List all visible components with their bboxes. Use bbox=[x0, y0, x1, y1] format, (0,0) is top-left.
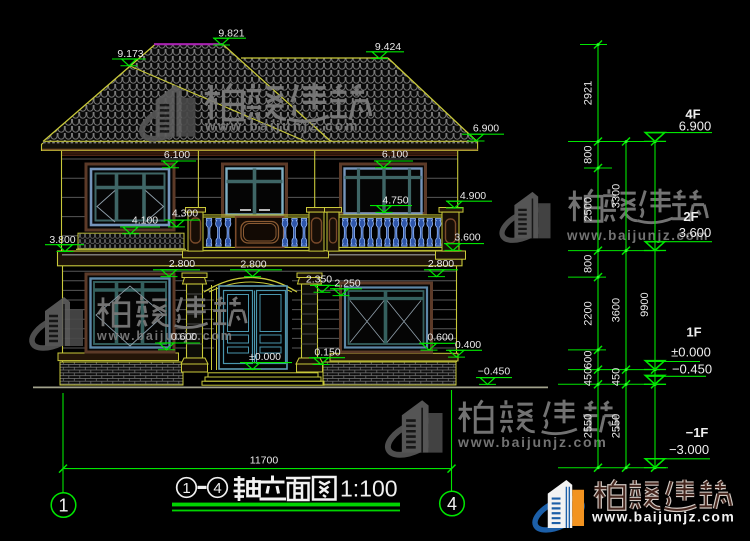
svg-text:2921: 2921 bbox=[583, 81, 595, 105]
svg-text:800: 800 bbox=[583, 255, 595, 273]
svg-text:4.100: 4.100 bbox=[132, 215, 158, 227]
svg-text:6.900: 6.900 bbox=[473, 123, 499, 135]
svg-text:2550: 2550 bbox=[583, 414, 595, 438]
svg-text:6.100: 6.100 bbox=[382, 149, 408, 161]
svg-text:3.600: 3.600 bbox=[454, 232, 480, 244]
svg-text:4.750: 4.750 bbox=[382, 195, 408, 207]
svg-text:2200: 2200 bbox=[583, 301, 595, 325]
svg-text:0.150: 0.150 bbox=[314, 347, 340, 359]
svg-text:9900: 9900 bbox=[639, 292, 651, 316]
svg-text:1F: 1F bbox=[686, 325, 701, 340]
svg-text:−0.450: −0.450 bbox=[478, 366, 511, 378]
svg-text:450: 450 bbox=[583, 368, 595, 386]
svg-text:0.600: 0.600 bbox=[427, 332, 453, 344]
svg-text:1: 1 bbox=[182, 480, 190, 497]
svg-text:800: 800 bbox=[583, 146, 595, 164]
svg-text:0.600: 0.600 bbox=[171, 331, 197, 343]
svg-text:450: 450 bbox=[611, 368, 623, 386]
svg-text:3.800: 3.800 bbox=[49, 234, 75, 246]
svg-text:0.400: 0.400 bbox=[455, 339, 481, 351]
svg-text:2500: 2500 bbox=[583, 197, 595, 221]
svg-text:6.100: 6.100 bbox=[164, 149, 190, 161]
svg-text:−1F: −1F bbox=[686, 425, 709, 440]
svg-text:2.800: 2.800 bbox=[240, 259, 266, 271]
svg-text:4.300: 4.300 bbox=[172, 208, 198, 220]
svg-text:1: 1 bbox=[58, 496, 68, 516]
svg-text:3600: 3600 bbox=[611, 298, 623, 322]
svg-text:11700: 11700 bbox=[250, 455, 279, 467]
svg-text:4.900: 4.900 bbox=[460, 190, 486, 202]
svg-text:2.800: 2.800 bbox=[428, 258, 454, 270]
svg-text:6.900: 6.900 bbox=[679, 119, 712, 134]
svg-text:±0.000: ±0.000 bbox=[249, 351, 281, 363]
svg-text:9.424: 9.424 bbox=[375, 41, 401, 53]
svg-text:2.350: 2.350 bbox=[306, 274, 332, 286]
svg-text:3.600: 3.600 bbox=[679, 225, 712, 240]
svg-text:±0.000: ±0.000 bbox=[671, 345, 711, 360]
svg-text:−3.000: −3.000 bbox=[669, 442, 709, 457]
svg-text:2.800: 2.800 bbox=[169, 258, 195, 270]
svg-text:www.baijunjz.com: www.baijunjz.com bbox=[96, 329, 234, 343]
svg-text:2.250: 2.250 bbox=[334, 278, 360, 290]
svg-text:−0.450: −0.450 bbox=[672, 362, 712, 377]
svg-text:9.173: 9.173 bbox=[117, 48, 143, 60]
svg-text:9.821: 9.821 bbox=[218, 28, 244, 40]
svg-text:2F: 2F bbox=[683, 209, 698, 224]
svg-text:600: 600 bbox=[583, 351, 595, 369]
svg-text:www.baijunjz.com: www.baijunjz.com bbox=[591, 509, 735, 525]
svg-text:3300: 3300 bbox=[611, 184, 623, 208]
svg-text:4: 4 bbox=[213, 480, 221, 497]
svg-text:4: 4 bbox=[447, 494, 457, 514]
svg-text:1:100: 1:100 bbox=[340, 476, 398, 502]
svg-text:www.baijunjz.com: www.baijunjz.com bbox=[204, 119, 360, 134]
svg-text:2550: 2550 bbox=[611, 414, 623, 438]
